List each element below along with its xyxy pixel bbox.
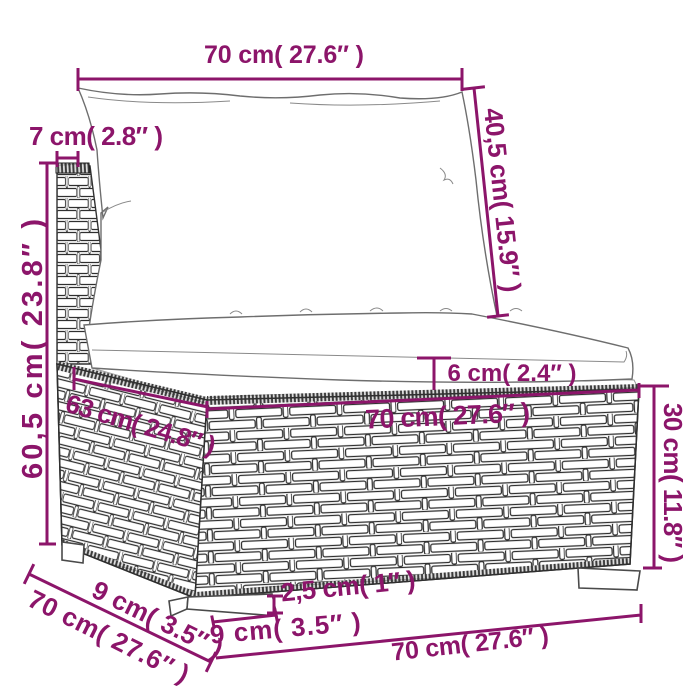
svg-text:70 cm( 27.6″ ): 70 cm( 27.6″ ) xyxy=(204,41,364,69)
svg-text:7 cm( 2.8″ ): 7 cm( 2.8″ ) xyxy=(29,121,163,151)
svg-text:6 cm( 2.4″ ): 6 cm( 2.4″ ) xyxy=(448,360,577,387)
svg-text:30 cm( 11.8″ ): 30 cm( 11.8″ ) xyxy=(658,403,688,563)
